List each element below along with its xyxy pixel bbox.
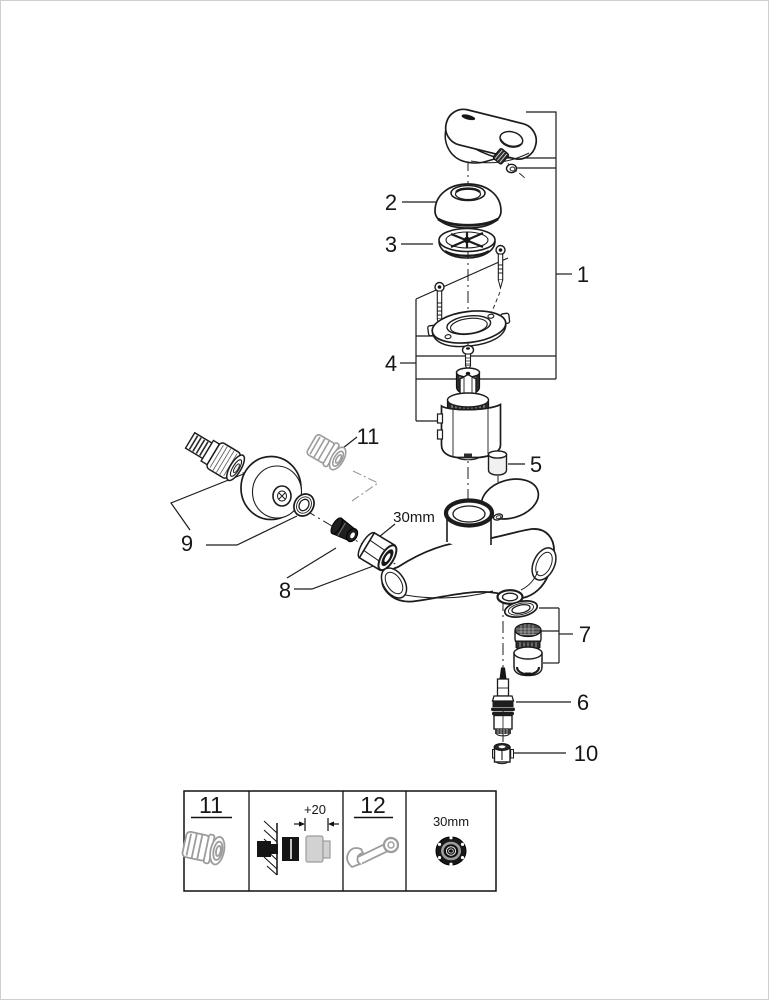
legend: 11 +20 — [181, 791, 496, 891]
callout-6: 6 — [577, 690, 589, 715]
part-handle-lever — [442, 106, 540, 163]
extension-axis-grey — [352, 471, 378, 501]
callout-8: 8 — [279, 578, 291, 603]
nut-30mm-icon — [436, 836, 466, 866]
part-aerator-insert — [515, 624, 541, 651]
diagram-page: 1 2 3 4 5 6 7 8 9 10 11 30mm 11 — [0, 0, 769, 1000]
legend-item-11-number: 11 — [199, 792, 223, 818]
legend-nut-size: 30mm — [433, 814, 469, 829]
callout-4: 4 — [385, 351, 397, 376]
part-check-valve — [493, 744, 514, 764]
part-aerator-housing — [514, 647, 542, 676]
callout-9: 9 — [181, 531, 193, 556]
dimension-30mm: 30mm — [393, 509, 435, 526]
legend-item-12-number: 12 — [360, 792, 386, 818]
bracket-7 — [539, 608, 573, 663]
part-diverter — [491, 668, 515, 736]
part-plug — [489, 451, 507, 475]
legend-offset-label: +20 — [304, 802, 326, 817]
part-extension-grey — [305, 432, 349, 473]
part-dome-cap — [435, 184, 501, 228]
callout-11: 11 — [357, 424, 380, 449]
callout-1: 1 — [577, 262, 589, 287]
callout-7: 7 — [579, 622, 591, 647]
callout-3: 3 — [385, 232, 397, 257]
part-cartridge — [438, 372, 501, 460]
leader-11 — [343, 437, 357, 448]
exploded-diagram: 1 2 3 4 5 6 7 8 9 10 11 30mm 11 — [1, 1, 768, 999]
part-s-union — [182, 428, 248, 484]
part-union-nut — [355, 530, 400, 573]
part-small-screw — [463, 346, 474, 370]
callout-5: 5 — [530, 452, 542, 477]
part-cap-ring — [439, 229, 495, 259]
part-rosette — [241, 457, 302, 520]
callout-2: 2 — [385, 190, 397, 215]
screw-right — [496, 246, 505, 289]
callout-10: 10 — [574, 741, 598, 766]
